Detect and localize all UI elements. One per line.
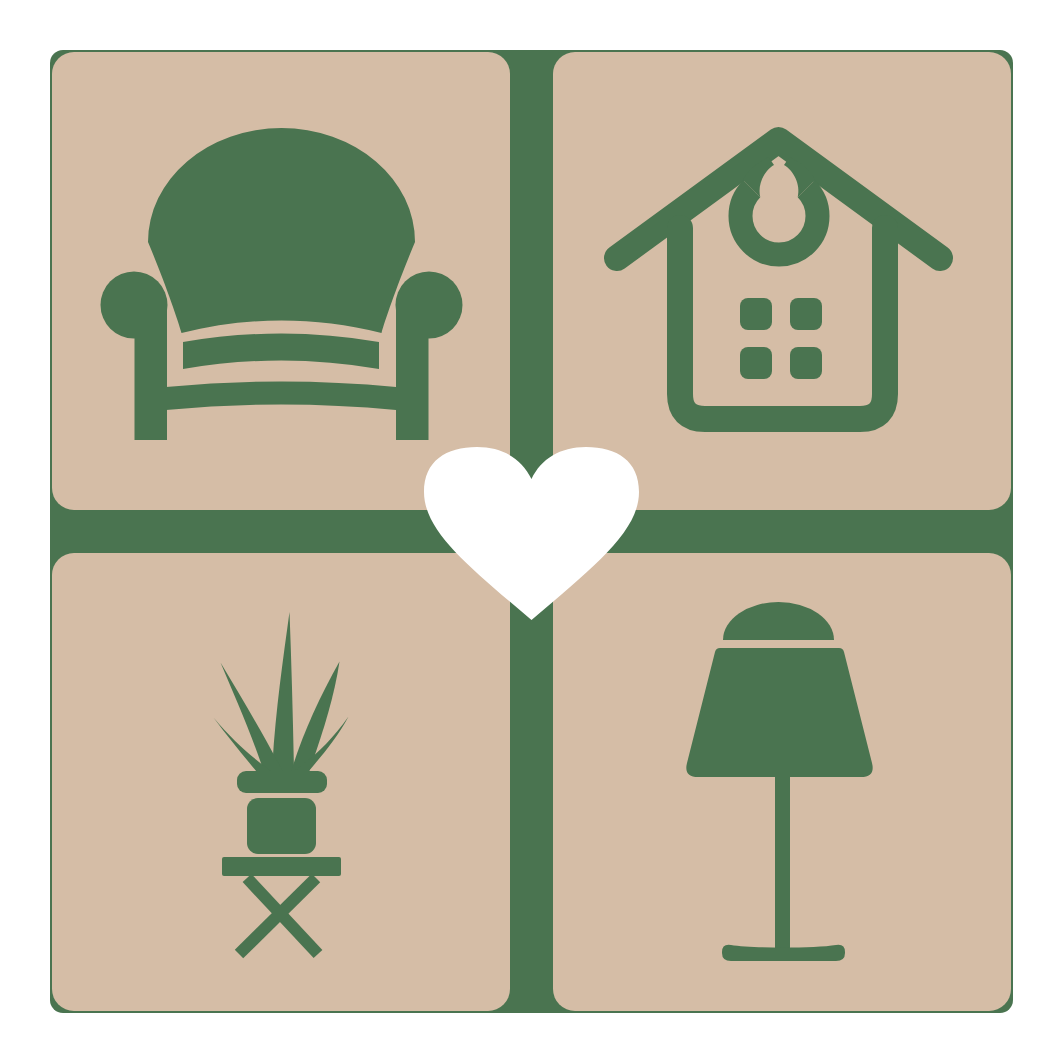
tile-top-right (553, 52, 1011, 510)
logo-canvas (0, 0, 1063, 1063)
window-pane (740, 347, 772, 379)
armchair-leg-right (396, 305, 429, 440)
window-pane (790, 347, 822, 379)
lamp-shade (686, 648, 872, 777)
pot-rim (237, 771, 327, 793)
window-pane (740, 298, 772, 330)
stool-top (222, 857, 341, 876)
armchair-leg-left (135, 305, 168, 440)
home-decor-logo (0, 0, 1063, 1063)
lamp-stem (775, 777, 790, 949)
pot-body (247, 798, 316, 854)
window-pane (790, 298, 822, 330)
